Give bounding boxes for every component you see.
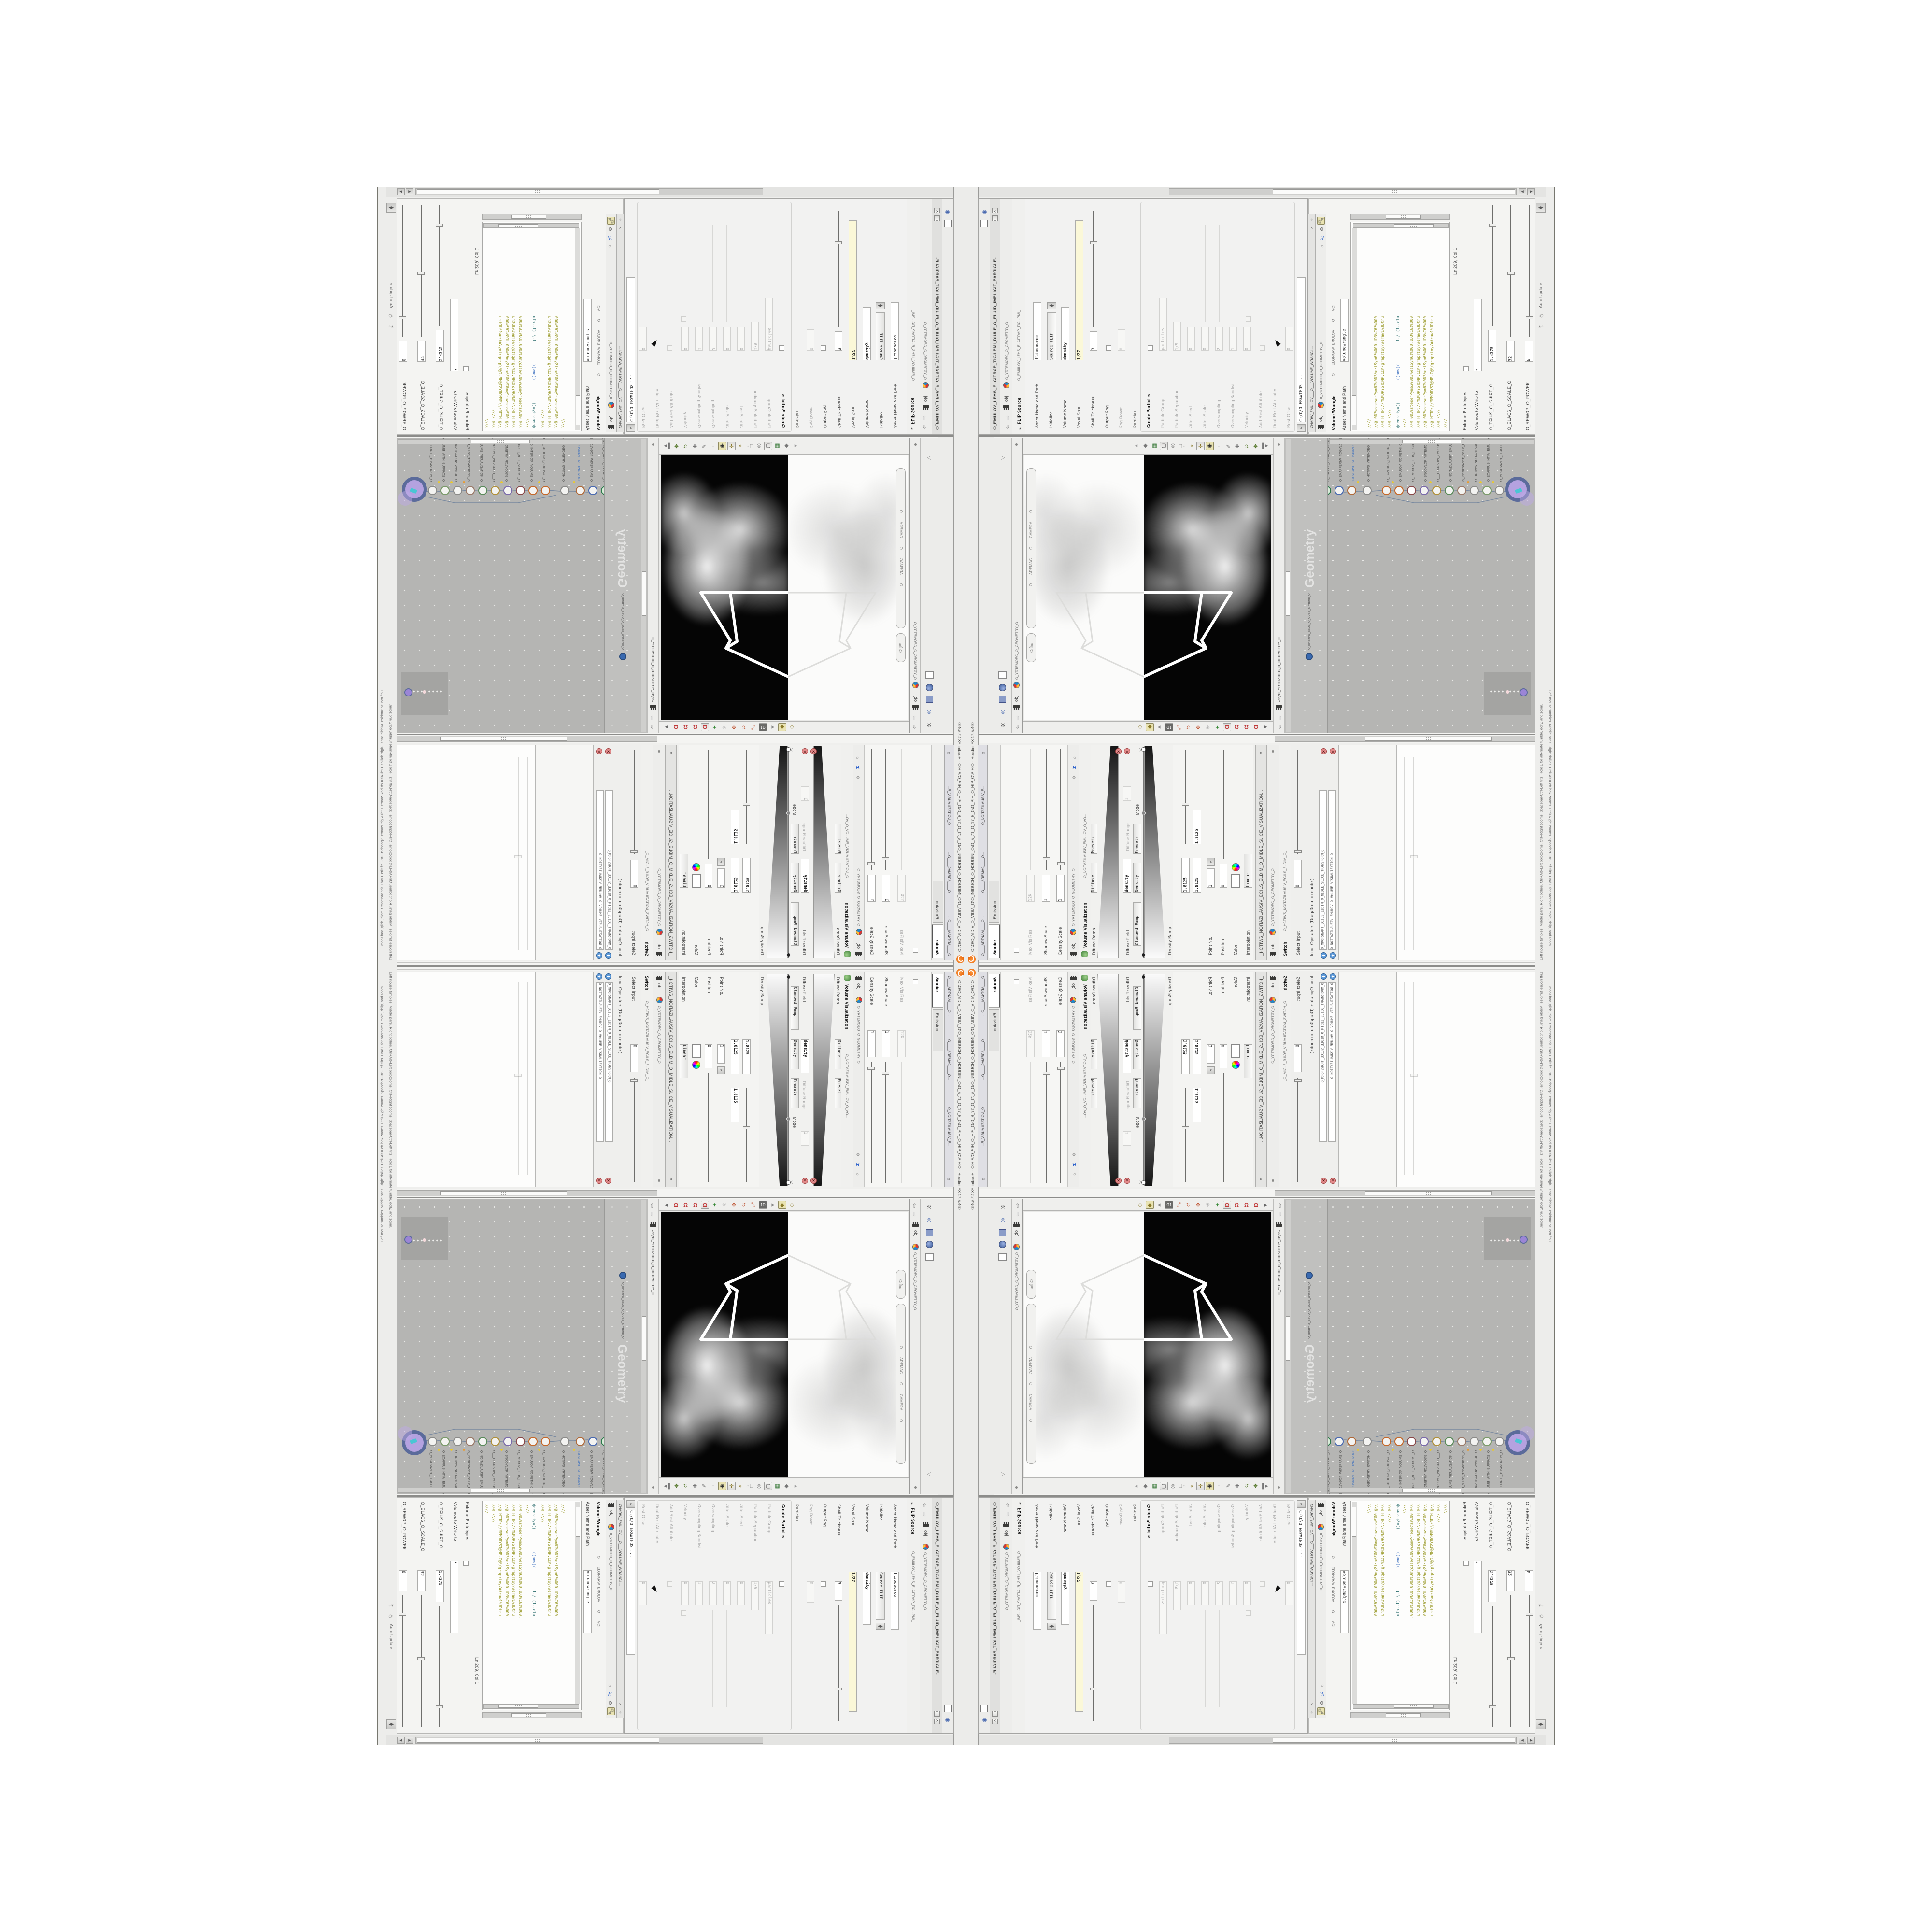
viz-tab[interactable]: Volume Visualization (844, 903, 849, 948)
diffuse-range-value[interactable]: 1 (801, 786, 809, 801)
point-no-field[interactable]: 1 (717, 868, 725, 888)
delete-ramp-point-button[interactable]: ✕ (1115, 748, 1122, 754)
pane-tab-mantra[interactable]: O____ARTNAM____O... (981, 916, 985, 956)
uv-view-icon[interactable]: ▦ (773, 1482, 781, 1490)
breadcrumb-obj[interactable]: obj (1319, 415, 1323, 422)
nav-up-icon[interactable]: ⇧ (1015, 723, 1020, 730)
shadow-scale-slider[interactable] (885, 749, 886, 870)
refresh-icon[interactable]: ⟳ (387, 1612, 395, 1620)
obj-earth-node[interactable] (619, 1272, 626, 1279)
value-slider-thumb[interactable] (1182, 803, 1189, 806)
shell-thickness-slider[interactable] (1093, 1605, 1094, 1721)
pane-splitter-corner[interactable]: ◀▶ (1536, 203, 1546, 213)
restore-window-icon[interactable]: ❐ (992, 215, 998, 221)
wire-mode-icon[interactable]: ◇ (788, 1201, 796, 1209)
node-transform-2[interactable] (1457, 1437, 1466, 1446)
network-minimap[interactable] (1484, 672, 1531, 715)
rotate-handle-icon[interactable]: ↺ (739, 1201, 748, 1209)
zoom-icon[interactable]: ○⃕ (746, 442, 754, 450)
search-icon[interactable]: ○ (1321, 1683, 1324, 1689)
initialize-combo[interactable]: Source FLIP (876, 1572, 885, 1620)
wrangle-tab[interactable]: Volume Wrangle (596, 1502, 600, 1536)
persp-cup-icon[interactable]: ▢ (1160, 1482, 1168, 1490)
vex-code-editor[interactable]: //// //@ \\\\ //@ HTTP://MEMORYST@MP.C@M… (1350, 222, 1450, 431)
anvil-icon[interactable]: ⚒ (925, 1203, 933, 1211)
voxel-size-field[interactable]: 1/27 (849, 220, 857, 360)
vex-code-editor[interactable]: //// //@ \\\\ //@ HTTP://MEMORYST@MP.C@M… (482, 1501, 582, 1710)
tab-emission[interactable]: Emission (989, 881, 999, 923)
nav-up-icon[interactable]: ⇧ (1278, 1202, 1282, 1209)
maximize-pane-icon[interactable] (944, 1705, 952, 1712)
select-mode-icon[interactable]: ◄▌ (663, 1482, 671, 1490)
character-tool-icon[interactable]: ✳ (720, 723, 728, 731)
pane-tab-camera[interactable]: O____AREMAC____O... (947, 1039, 951, 1080)
restore-window-icon[interactable]: ❐ (934, 1711, 940, 1717)
pane-expand-icon[interactable]: ⊹ (619, 218, 622, 222)
view-layout-icon[interactable]: 1D (1165, 723, 1173, 731)
code-vscrollbar[interactable] (575, 228, 580, 430)
ramp-mode-combo[interactable]: Clamped Ramp (791, 902, 799, 946)
close-icon[interactable]: ✕ (619, 1703, 622, 1706)
oversampling-bw-field[interactable]: 1 (1229, 327, 1237, 351)
nav-down-icon[interactable]: ⇩ (1005, 414, 1010, 421)
breadcrumb-geometry[interactable]: O_YRTEMOEG_O_GEOMETRY_O (1320, 341, 1323, 399)
breadcrumb-geometry[interactable]: O_YRTEMOEG_O_GEOMETRY_O (1005, 322, 1009, 380)
cursor-tool-icon[interactable]: ➤ (1155, 1201, 1164, 1209)
insert-item-button[interactable]: ➜ (1321, 973, 1327, 980)
jitter-seed-field[interactable]: 0 (737, 327, 745, 351)
radial-menu-icon[interactable]: ◉ (943, 1716, 952, 1724)
color-swatch[interactable] (692, 874, 701, 888)
close-window-icon[interactable]: ✕ (992, 208, 998, 213)
breadcrumb-geometry[interactable]: O_YRTEMOEG_O_GEOMETRY_O (913, 622, 917, 680)
slider-thumb[interactable] (1489, 224, 1496, 227)
value-field[interactable]: 1.8125 (1181, 1039, 1190, 1074)
snap-magnet-point-icon[interactable]: Ω (1233, 1201, 1241, 1209)
pin-icon[interactable] (652, 1486, 654, 1489)
density-scale-field[interactable]: 1 (1056, 875, 1065, 902)
auto-update-label[interactable]: Auto Update (1539, 283, 1543, 308)
breadcrumb-geometry[interactable]: O_YRTEMOEG_O_GEOMETRY_O (1015, 622, 1019, 680)
flipsource-name-field[interactable]: flipsource (891, 302, 899, 360)
cursor-tool-icon[interactable]: ➤ (1155, 723, 1164, 731)
color-wheel-icon[interactable] (1232, 1061, 1240, 1069)
projection-pill[interactable]: Ortho▾ (896, 633, 906, 662)
ramp-gradient-wedge[interactable] (813, 746, 835, 958)
slider-thumb[interactable] (417, 272, 425, 275)
gear-icon[interactable]: ⚙ (1320, 1701, 1324, 1706)
ramp-handle[interactable] (1141, 811, 1146, 815)
select-input-slider[interactable] (634, 750, 635, 854)
houdini-help-icon[interactable]: H (1321, 1692, 1324, 1697)
viz-checkbox[interactable] (913, 948, 918, 953)
vex-code-editor[interactable]: //// //@ \\\\ //@ HTTP://MEMORYST@MP.C@M… (1350, 1501, 1450, 1710)
auto-update-label[interactable]: Auto Update (1539, 1624, 1543, 1649)
projection-pill[interactable]: Ortho▾ (1026, 633, 1036, 662)
pin-icon[interactable] (1278, 443, 1280, 446)
point-no-field[interactable]: 1 (717, 1044, 725, 1064)
shell-thickness-slider[interactable] (838, 211, 839, 327)
cursor-tool-icon[interactable]: ➤ (768, 723, 777, 731)
brush-icon[interactable]: ✎ (1224, 442, 1232, 450)
value-slider-thumb[interactable] (743, 1126, 750, 1129)
zoom-icon[interactable]: ○⃕ (1178, 1482, 1186, 1490)
flip-window-titlebar[interactable]: O_EMULOV_LEHS_ELCITRAP_TICILPMI_DIULF_O_… (932, 1498, 943, 1733)
close-window-icon[interactable]: ✕ (934, 208, 940, 213)
search-icon[interactable]: ○ (608, 1683, 611, 1689)
diamond-icon[interactable]: ◆ (782, 1482, 791, 1490)
ramp-handle[interactable] (1141, 1117, 1146, 1121)
velocity-checkbox[interactable] (681, 316, 686, 322)
input-operator-item[interactable]: O_NOITAZILAUSIV_EMULOV_O_VOLUME_VISUALIZ… (596, 790, 604, 950)
gear-icon[interactable]: ⚙ (1320, 226, 1324, 231)
ramp-gradient-wedge[interactable] (767, 974, 788, 1186)
scale-param-field[interactable]: 32 (1506, 1570, 1515, 1591)
cube-icon[interactable] (999, 1229, 1006, 1236)
fog-boost-field[interactable]: 0 (807, 1581, 814, 1603)
view-layout-icon[interactable]: 1D (1165, 1201, 1173, 1209)
jitter-seed-field[interactable]: 0 (1187, 327, 1195, 351)
ramp-gradient-wedge[interactable] (1097, 974, 1119, 1186)
initialize-combo[interactable]: Source FLIP (1047, 312, 1056, 360)
flip-window-titlebar[interactable]: O_EMULOV_LEHS_ELCITRAP_TICILPMI_DIULF_O_… (989, 199, 1000, 434)
volume-name-field[interactable]: density (1061, 1572, 1069, 1625)
breadcrumb-obj[interactable]: obj (913, 1230, 918, 1236)
node-volume-wrangle[interactable] (1432, 486, 1441, 495)
breadcrumb-geometry[interactable]: O_YRTEMOEG_O_GEOMETRY_O (1005, 1552, 1009, 1610)
create-particles-checkbox[interactable] (1148, 345, 1153, 351)
power-param-field[interactable]: 6 (399, 341, 407, 362)
ramp-gradient-wedge[interactable] (767, 746, 788, 958)
select-arrow-icon[interactable]: ◄ (662, 1201, 670, 1209)
close-window-icon[interactable]: ✕ (992, 1719, 998, 1724)
pin-icon[interactable] (658, 1179, 660, 1182)
value-field[interactable]: 1.8125 (731, 858, 739, 893)
sphere-icon[interactable] (999, 1241, 1006, 1248)
node-clip-interior-volume[interactable] (528, 486, 538, 495)
scale-handle-icon[interactable]: ⤡ (749, 723, 757, 731)
view-dolly-icon[interactable]: ◐ (1187, 1482, 1195, 1490)
ramp-gradient-wedge[interactable] (1144, 974, 1165, 1186)
delete-ramp-point-button[interactable]: ✕ (1124, 748, 1130, 754)
scroll-right-button[interactable]: ▶ (1519, 188, 1526, 195)
code-outer-scrollbar[interactable] (1350, 214, 1450, 220)
node-transform[interactable] (428, 1437, 437, 1446)
houdini-help-icon[interactable]: H (1321, 235, 1324, 240)
pane-splitter-corner[interactable]: ◀▶ (386, 203, 396, 213)
houdini-help-icon[interactable]: H (856, 1162, 859, 1167)
node-polywire[interactable] (1335, 486, 1344, 495)
particle-separation-field[interactable]: 1/9 (751, 1581, 759, 1610)
node-clip-interior-surface[interactable] (1382, 1437, 1391, 1446)
node-clip-interior-surface[interactable] (1382, 486, 1391, 495)
pane-scrollbar[interactable] (1275, 736, 1535, 742)
pane-scrollbar[interactable] (397, 1190, 657, 1196)
value-slider-thumb[interactable] (743, 803, 750, 806)
frame-icon[interactable]: ◎ (755, 1482, 763, 1490)
position-slider[interactable] (708, 1073, 709, 1182)
asset-name-field[interactable]: volumewrangle (1340, 1570, 1349, 1633)
combo-arrows[interactable]: ◀▶ (1047, 1623, 1056, 1630)
camera-pill[interactable]: O____AREMAC____O____CAMERA____O (1026, 468, 1036, 628)
rotate-handle-icon[interactable]: ↺ (1184, 723, 1193, 731)
diffuse-field-value[interactable]: density (1123, 1039, 1131, 1073)
breadcrumb-obj[interactable]: obj (1004, 1530, 1009, 1536)
max-vis-res-field[interactable]: 128 (897, 875, 906, 902)
switch-tab[interactable]: Switch (644, 976, 649, 990)
close-tab-icon[interactable]: ⊠ (982, 1177, 985, 1181)
enforce-prototypes-checkbox[interactable] (1463, 366, 1469, 371)
camera-pill[interactable]: O____AREMAC____O____CAMERA____O (1026, 1304, 1036, 1464)
value-slider[interactable] (1185, 1088, 1186, 1182)
auto-update-mode-icon[interactable]: ◔▾ (387, 323, 395, 330)
snap-magnet-multi-icon[interactable]: Ω (1223, 723, 1231, 731)
network-scrollbar[interactable] (398, 439, 603, 444)
voxel-size-field[interactable]: 1/27 (849, 1572, 857, 1712)
vex-highlight-icon[interactable]: 🗝 (607, 217, 615, 225)
transform-handle-icon[interactable]: ✥ (1194, 723, 1202, 731)
viewport-render-area[interactable]: Ortho▾ O____AREMAC____O____CAMERA____O (661, 455, 908, 720)
view-tumble-icon[interactable]: ◉ (718, 1482, 726, 1490)
maximize-pane-icon[interactable] (980, 1705, 988, 1712)
collapse-arrow-icon[interactable]: ▾ (1019, 426, 1021, 431)
gear-icon[interactable]: ⚙ (608, 1701, 612, 1706)
shift-param-field[interactable]: 1.4375 (436, 1570, 444, 1602)
diffuse-field-value[interactable]: density (801, 859, 809, 893)
shell-thickness-slider[interactable] (1093, 211, 1094, 327)
nav-down-icon[interactable]: ⇩ (912, 714, 917, 721)
scale-param-slider[interactable] (1510, 205, 1511, 337)
translate-icon[interactable]: ✥ (1251, 442, 1260, 450)
translate-icon[interactable]: ✥ (672, 1482, 681, 1490)
houdini-help-icon[interactable]: H (856, 765, 859, 770)
oversampling-bw-field[interactable]: 1 (695, 327, 703, 351)
diamond-icon[interactable]: ◆ (782, 442, 791, 450)
select-mode-icon[interactable]: ◄▌ (1261, 1482, 1269, 1490)
color-swatch[interactable] (692, 1044, 701, 1058)
pane-tab-visualization[interactable]: O_NOITAZILAUSIV_E... (981, 786, 985, 825)
collapse-arrow-icon[interactable]: ▾ (911, 426, 913, 431)
pane-tab-mantra[interactable]: O____ARTNAM____O... (947, 916, 951, 956)
node-geometry-switch[interactable] (560, 1437, 569, 1446)
node-merge[interactable] (1482, 1437, 1492, 1446)
jitter-seed-field[interactable]: 0 (1187, 1581, 1195, 1605)
select-input-slider-thumb[interactable] (630, 1079, 638, 1082)
value-slider-thumb[interactable] (1182, 1126, 1189, 1129)
delete-ramp-point-button[interactable]: ✕ (810, 748, 817, 754)
value-field[interactable]: 1.8125 (731, 810, 739, 844)
handles-icon[interactable]: ✚ (1233, 1482, 1241, 1490)
timeline-scrollbar[interactable] (1169, 1737, 1517, 1744)
cube-icon[interactable] (926, 1229, 933, 1236)
select-input-slider-thumb[interactable] (1294, 1079, 1302, 1082)
interpolation-combo[interactable]: Linear (680, 1044, 688, 1078)
max-vis-res-field[interactable]: 128 (897, 1030, 906, 1057)
camera-pill[interactable]: O____AREMAC____O____CAMERA____O (896, 1304, 906, 1464)
pose-tool-icon[interactable]: ✦ (710, 1201, 719, 1209)
density-scale-field[interactable]: 1 (867, 1030, 876, 1057)
fog-boost-field[interactable]: 0 (807, 329, 814, 351)
houdini-help-icon[interactable]: H (608, 235, 611, 240)
position-field[interactable]: 0 (1220, 1044, 1227, 1068)
breadcrumb-obj[interactable]: obj (1271, 942, 1275, 949)
node-flip-source[interactable] (516, 1437, 525, 1446)
value-field[interactable]: 1.8125 (731, 1039, 739, 1074)
pane-tab-camera[interactable]: O____AREMAC____O... (981, 1039, 985, 1080)
value-field[interactable]: 1.8125 (1193, 810, 1201, 844)
pane-tab-visualization[interactable]: O_NOITAZILAUSIV_E... (947, 1107, 951, 1146)
close-window-icon[interactable]: ✕ (934, 1719, 940, 1724)
handles-icon[interactable]: ✚ (691, 1482, 699, 1490)
scroll-right-button[interactable]: ▶ (406, 188, 413, 195)
breadcrumb-obj[interactable]: obj (1071, 983, 1076, 990)
node-vdb-from-polygons[interactable] (503, 1437, 512, 1446)
asset-name-field[interactable]: volumewrangle (1340, 299, 1349, 362)
combo-arrows[interactable]: ◀▶ (876, 302, 885, 309)
insert-item-button[interactable]: ➜ (1330, 973, 1336, 980)
velocity-field[interactable]: 0 (681, 1581, 689, 1605)
transform-handle-icon[interactable]: ✥ (1194, 1201, 1202, 1209)
node-vdb-from-polygons[interactable] (1420, 1437, 1429, 1446)
tab-emission[interactable]: Emission (989, 1009, 999, 1051)
oversampling-field[interactable]: 2 (709, 1581, 717, 1605)
sphere-icon[interactable] (926, 684, 933, 691)
rest-offset-field[interactable]: 0 (1285, 327, 1293, 351)
volume-name-field[interactable]: density (863, 1572, 871, 1625)
handles-icon[interactable]: ✚ (1233, 442, 1241, 450)
radial-menu-icon[interactable]: ◉ (980, 1716, 989, 1724)
particle-separation-field[interactable]: 1/9 (1173, 322, 1181, 351)
diffuse-range-value[interactable]: 1 (1123, 1131, 1131, 1146)
particle-separation-field[interactable]: 1/9 (751, 322, 759, 351)
snap-magnet-point-icon[interactable]: Ω (691, 1201, 699, 1209)
ramp-gradient-wedge[interactable] (813, 974, 835, 1186)
pin-icon[interactable] (1272, 750, 1274, 753)
rest-offset-field[interactable]: 0 (639, 327, 647, 351)
delete-ramp-point-button[interactable]: ✕ (1115, 1178, 1122, 1184)
software-path-field[interactable]: C:/O/O_ERAWTFOS_... (1297, 277, 1306, 422)
more-arrow-icon[interactable]: ▸ (792, 442, 800, 450)
more-arrow-icon[interactable]: ▸ (1132, 1482, 1140, 1490)
switch-tab[interactable]: Switch (1283, 942, 1288, 956)
node-volume-visualization[interactable] (1445, 486, 1454, 495)
velocity-checkbox[interactable] (681, 1610, 686, 1616)
wrangle-tab[interactable]: Volume Wrangle (1332, 396, 1336, 430)
breadcrumb-geometry[interactable]: O_YRTEMOEG_O_GEOMETRY_O (1072, 1006, 1076, 1064)
path-dropdown[interactable]: ▾ (626, 424, 635, 432)
network-path[interactable]: /obj/O_YRTEMOEG_O_GEOMETRY_O (651, 637, 655, 702)
close-tab-icon[interactable]: ⊠ (982, 751, 985, 755)
node-geometry-switch[interactable] (1363, 1437, 1372, 1446)
position-field[interactable]: 0 (705, 864, 712, 888)
uv-view-icon[interactable]: ▦ (1151, 442, 1159, 450)
brush-icon[interactable]: ✎ (700, 442, 708, 450)
velocity-field[interactable]: 0 (681, 327, 689, 351)
slider-thumb[interactable] (1526, 1613, 1533, 1616)
network-minimap[interactable] (401, 672, 448, 715)
ramp-presets-combo[interactable]: Presets (791, 824, 799, 854)
color-swatch[interactable] (1231, 1044, 1240, 1058)
input-operator-item[interactable]: O_MROFSNART_ECILS_ELDIM_O_MIDLE_SLICE_TR… (605, 982, 613, 1142)
ramp-handle[interactable] (786, 811, 791, 815)
select-input-slider-thumb[interactable] (630, 850, 638, 853)
software-path-field[interactable]: C:/O/O_ERAWTFOS_... (1297, 1510, 1306, 1655)
view-pan-icon[interactable]: ✛ (727, 1482, 736, 1490)
select-mode-icon[interactable]: ◄▌ (1261, 442, 1269, 450)
translate-icon[interactable]: ✥ (1251, 1482, 1260, 1490)
output-fog-checkbox[interactable] (821, 345, 826, 351)
jitter-seed-field[interactable]: 0 (737, 1581, 745, 1605)
node-volume-visualization[interactable] (478, 1437, 487, 1446)
ramp-density-combo[interactable]: Density (1133, 1039, 1141, 1069)
particle-group-field[interactable]: particles (765, 298, 773, 351)
tab-emission[interactable]: Emission (933, 881, 943, 923)
scale-param-slider[interactable] (421, 1595, 422, 1727)
select-input-field[interactable]: 0 (630, 860, 638, 888)
node-geometry-switch[interactable] (1363, 486, 1372, 495)
lasso-icon[interactable]: ○ (1215, 442, 1223, 450)
gear-icon[interactable]: ⚙ (1072, 774, 1076, 780)
anvil-icon[interactable]: ⚒ (925, 721, 933, 729)
oversampling-bw-field[interactable]: 1 (1229, 1581, 1237, 1605)
delete-item-button[interactable]: ✕ (596, 1178, 602, 1184)
ramp-density-combo[interactable]: Density (1133, 863, 1141, 893)
input-operator-item[interactable]: O_MROFSNART_ECILS_ELDIM_O_MIDLE_SLICE_TR… (1319, 982, 1327, 1142)
software-path-field[interactable]: C:/O/O_ERAWTFOS_... (626, 1510, 635, 1655)
sphere-icon[interactable] (926, 1241, 933, 1248)
ramp-mode-combo[interactable]: Clamped Ramp (791, 986, 799, 1030)
node-volume-wrangle[interactable] (491, 486, 500, 495)
projection-pill[interactable]: Ortho▾ (1026, 1270, 1036, 1299)
breadcrumb-geometry[interactable]: O_YRTEMOEG_O_GEOMETRY_O (1271, 868, 1275, 926)
add-rest-checkbox[interactable] (667, 1581, 672, 1587)
ramp-mode-combo[interactable]: Clamped Ramp (1133, 986, 1141, 1030)
close-tab-icon[interactable]: ⊠ (947, 1177, 950, 1181)
ramp-handle[interactable] (786, 1117, 791, 1121)
plane-icon[interactable] (925, 1253, 934, 1261)
pane-expand-icon[interactable]: ⊹ (1310, 218, 1313, 222)
nav-down-icon[interactable]: ⇩ (912, 1211, 917, 1218)
pane-tab-camera[interactable]: O____AREMAC____O... (981, 852, 985, 893)
asset-name-field[interactable]: volumewrangle (583, 1570, 592, 1633)
value-slider[interactable] (746, 1088, 747, 1182)
viewport-render-area[interactable]: Ortho▾ O____AREMAC____O____CAMERA____O (661, 1212, 908, 1477)
pin-icon[interactable] (652, 443, 654, 446)
enforce-prototypes-checkbox[interactable] (463, 366, 469, 371)
pin-icon[interactable] (658, 750, 660, 753)
flip-tab[interactable]: FLIP Source (910, 398, 915, 424)
interpolation-combo[interactable]: Linear (1244, 1044, 1252, 1078)
add-rest-checkbox[interactable] (1260, 1581, 1265, 1587)
rest-offset-field[interactable]: 0 (1285, 1581, 1293, 1605)
collapse-arrow-icon[interactable]: ▾ (911, 1501, 913, 1506)
enforce-prototypes-checkbox[interactable] (463, 1561, 469, 1566)
scale-handle-icon[interactable]: ⤡ (1175, 1201, 1183, 1209)
scale-param-field[interactable]: 32 (417, 1570, 426, 1591)
maximize-pane-icon[interactable] (944, 220, 952, 227)
shadow-scale-field[interactable]: 1 (1042, 1030, 1050, 1057)
breadcrumb-obj[interactable]: obj (856, 983, 861, 990)
search-icon[interactable]: ○ (856, 1172, 859, 1177)
slider-thumb[interactable] (867, 1067, 875, 1070)
node-transform-2[interactable] (466, 486, 475, 495)
input-operator-item[interactable]: O_MROFSNART_ECILS_ELDIM_O_MIDLE_SLICE_TR… (1319, 790, 1327, 950)
node-clip-interior-volume[interactable] (1394, 486, 1404, 495)
path-dropdown[interactable]: ▾ (1297, 424, 1306, 432)
power-param-field[interactable]: 6 (399, 1570, 407, 1591)
nav-down-icon[interactable]: ⇩ (650, 714, 654, 721)
max-vis-res-field[interactable]: 128 (1026, 1030, 1035, 1057)
